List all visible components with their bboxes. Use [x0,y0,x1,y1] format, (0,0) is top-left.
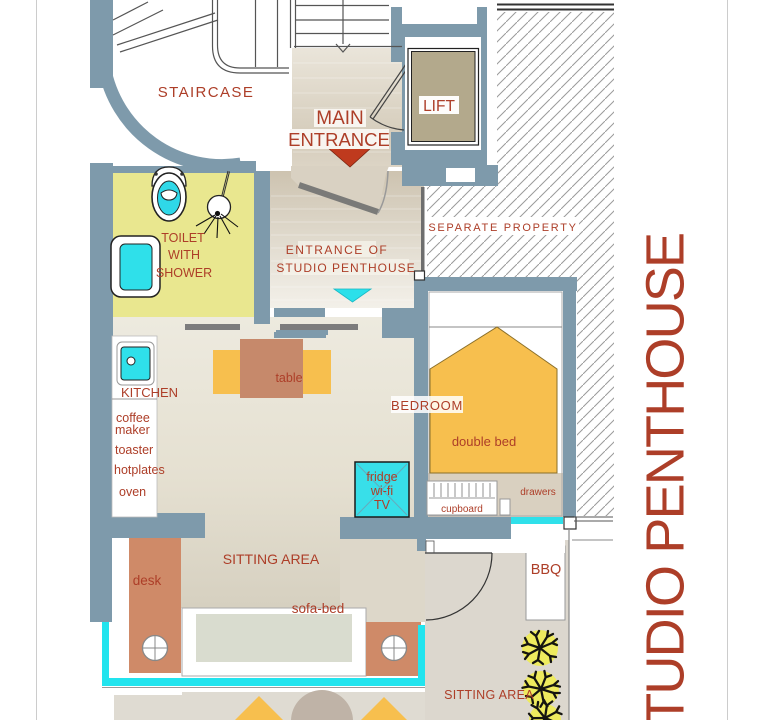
svg-text:STUDIO PENTHOUSE: STUDIO PENTHOUSE [636,234,696,720]
svg-text:fridge: fridge [366,470,397,484]
svg-text:WITH: WITH [168,248,200,262]
svg-text:KITCHEN: KITCHEN [121,385,178,400]
svg-text:TOILET: TOILET [161,231,205,245]
svg-text:ENTRANCE OF: ENTRANCE OF [286,243,389,257]
svg-text:ENTRANCE: ENTRANCE [288,129,390,150]
svg-text:toaster: toaster [115,443,153,457]
svg-text:SHOWER: SHOWER [156,266,212,280]
svg-text:STAIRCASE: STAIRCASE [158,84,255,101]
svg-text:LIFT: LIFT [423,98,455,115]
svg-text:sofa-bed: sofa-bed [292,601,345,616]
svg-text:SITTING AREA: SITTING AREA [444,688,534,702]
svg-text:table: table [275,371,302,385]
svg-text:cupboard: cupboard [441,504,483,515]
svg-text:maker: maker [115,423,150,437]
svg-text:TV: TV [374,498,391,512]
svg-text:double bed: double bed [452,434,516,449]
svg-text:hotplates: hotplates [114,463,165,477]
svg-text:MAIN: MAIN [316,108,364,129]
svg-text:desk: desk [133,573,162,588]
svg-text:STUDIO PENTHOUSE: STUDIO PENTHOUSE [276,261,415,275]
svg-text:drawers: drawers [520,487,556,498]
svg-text:wi-fi: wi-fi [370,484,393,498]
svg-text:BBQ: BBQ [531,562,562,578]
svg-text:SEPARATE PROPERTY: SEPARATE PROPERTY [428,222,577,234]
svg-text:SITTING AREA: SITTING AREA [223,551,320,567]
svg-text:oven: oven [119,485,146,499]
svg-text:BEDROOM: BEDROOM [391,398,463,413]
